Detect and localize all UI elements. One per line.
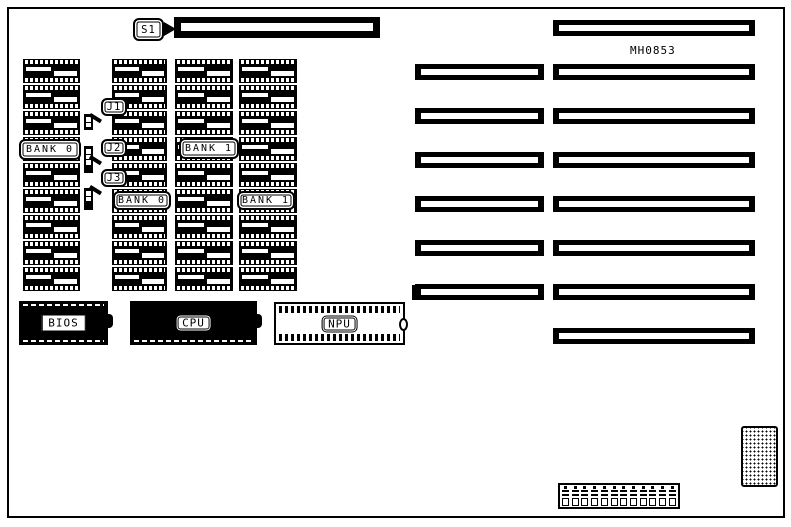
connector-terminal: [630, 486, 637, 492]
connector-dash: [572, 494, 579, 497]
memory-chip: [175, 59, 233, 83]
chip-pins: [175, 233, 233, 239]
connector-pin: [630, 498, 637, 506]
pin-row: [279, 306, 400, 313]
memory-chip: [175, 215, 233, 239]
memory-chip: [23, 267, 80, 291]
memory-chip: [239, 59, 297, 83]
memory-chip: [175, 241, 233, 265]
connector-dash-row: [562, 494, 676, 497]
chip-pins: [112, 259, 167, 265]
connector-terminal: [562, 486, 569, 492]
connector-pin: [601, 498, 608, 506]
memory-chip: [175, 267, 233, 291]
pin-row: [279, 334, 400, 341]
j2-label: J2: [101, 139, 127, 157]
chip-pins: [112, 77, 167, 83]
chip-pins: [175, 207, 233, 213]
memory-chip: [239, 85, 297, 109]
chip-body: [175, 247, 233, 259]
chip-pins: [23, 181, 80, 187]
chip-pins: [239, 285, 297, 291]
chip-pins: [175, 129, 233, 135]
memory-chip: [23, 241, 80, 265]
chip-body: [175, 221, 233, 233]
chip-pins: [175, 259, 233, 265]
chip-body: [23, 169, 80, 181]
memory-chip: [112, 59, 167, 83]
chip-notch-icon: [257, 314, 262, 328]
expansion-slot: [415, 284, 544, 300]
chip-notch-icon: [399, 318, 408, 331]
s1-label: S1: [133, 18, 164, 41]
jumper-cell: [86, 191, 91, 196]
connector-pin: [562, 498, 569, 506]
expansion-slot: [415, 152, 544, 168]
jumper-cell: [86, 160, 91, 165]
jumper-block-j3: [84, 188, 93, 210]
expansion-slot: [415, 240, 544, 256]
chip-body: [23, 247, 80, 259]
connector-dash: [601, 494, 608, 497]
memory-chip: [112, 267, 167, 291]
cpu-chip-label: CPU: [175, 315, 212, 332]
memory-chip: [175, 163, 233, 187]
expansion-slot: [415, 64, 544, 80]
memory-chip: [112, 241, 167, 265]
connector-dash: [630, 494, 637, 497]
chip-body: [239, 65, 297, 77]
chip-body: [239, 247, 297, 259]
expansion-slot: [553, 196, 755, 212]
chip-notch-icon: [108, 314, 113, 328]
memory-chip: [23, 111, 80, 135]
chip-pins: [175, 181, 233, 187]
cpu-chip: CPU: [130, 301, 257, 345]
memory-chip: [239, 111, 297, 135]
chip-body: [112, 221, 167, 233]
chip-pins: [23, 77, 80, 83]
expansion-slot: [553, 284, 755, 300]
chip-body: [175, 273, 233, 285]
connector-terminal: [581, 486, 588, 492]
chip-body: [239, 221, 297, 233]
connector-terminal: [649, 486, 656, 492]
chip-pins: [23, 129, 80, 135]
connector-pin: [620, 498, 627, 506]
memory-column: [239, 59, 297, 291]
chip-body: [239, 117, 297, 129]
connector-dash: [649, 494, 656, 497]
connector-dash: [611, 494, 618, 497]
jumper-cell: [86, 202, 91, 207]
memory-chip: [239, 215, 297, 239]
connector-terminal: [591, 486, 598, 492]
memory-chip: [175, 189, 233, 213]
bank1-label-left: BANK 1: [179, 138, 239, 159]
chip-body: [175, 169, 233, 181]
memory-chip: [175, 85, 233, 109]
npu-chip-label: NPU: [321, 315, 358, 332]
chip-pins: [175, 285, 233, 291]
expansion-slot: [553, 64, 755, 80]
chip-body: [175, 65, 233, 77]
jumper-cell: [86, 123, 91, 128]
memory-chip: [239, 267, 297, 291]
expansion-slot: [553, 152, 755, 168]
chip-body: [239, 273, 297, 285]
chip-body: [23, 273, 80, 285]
bios-chip-label: BIOS: [41, 315, 86, 332]
slot-column-right: [553, 20, 755, 344]
connector-dash: [659, 494, 666, 497]
connector-pin: [591, 498, 598, 506]
chip-pins: [175, 103, 233, 109]
chip-body: [23, 91, 80, 103]
connector-dash: [591, 494, 598, 497]
connector-terminal: [640, 486, 647, 492]
chip-body: [112, 247, 167, 259]
expansion-slot: [415, 196, 544, 212]
jumper-cell: [86, 197, 91, 202]
chip-body: [112, 65, 167, 77]
expansion-slot: [553, 108, 755, 124]
slot-column-left: [415, 64, 544, 300]
memory-chip: [175, 111, 233, 135]
connector-pin: [649, 498, 656, 506]
bank0-label-right: BANK 0: [113, 191, 171, 210]
pin-row: [134, 340, 253, 342]
connector-pin: [572, 498, 579, 506]
expansion-slot: [553, 20, 755, 36]
memory-column: [175, 59, 233, 291]
part-number: MH0853: [630, 44, 676, 57]
chip-pins: [23, 233, 80, 239]
memory-chip: [23, 189, 80, 213]
connector-dash: [669, 494, 676, 497]
chip-body: [239, 91, 297, 103]
connector-terminal: [601, 486, 608, 492]
memory-chip: [23, 163, 80, 187]
connector-terminal: [620, 486, 627, 492]
chip-body: [175, 117, 233, 129]
chip-pins: [23, 259, 80, 265]
j1-label: J1: [101, 98, 127, 116]
connector-dash: [640, 494, 647, 497]
chip-body: [239, 143, 297, 155]
expansion-slot: [553, 328, 755, 344]
pin-row: [23, 340, 104, 342]
s1-pointer-icon: [164, 22, 176, 36]
memory-chip: [239, 241, 297, 265]
connector-pin: [581, 498, 588, 506]
memory-chip: [239, 163, 297, 187]
chip-pins: [23, 207, 80, 213]
connector-terminal: [611, 486, 618, 492]
memory-chip: [239, 137, 297, 161]
memory-chip: [23, 215, 80, 239]
chip-pins: [239, 155, 297, 161]
memory-chip: [23, 85, 80, 109]
connector-terminal: [572, 486, 579, 492]
chip-pins: [239, 233, 297, 239]
chip-body: [175, 91, 233, 103]
chip-body: [23, 117, 80, 129]
chip-body: [239, 169, 297, 181]
chip-pins: [239, 77, 297, 83]
chip-body: [112, 273, 167, 285]
s1-switch-block: [174, 17, 380, 38]
chip-body: [23, 195, 80, 207]
connector-terminal: [659, 486, 666, 492]
connector-pin-row: [562, 498, 676, 506]
oscillator-component: [741, 426, 778, 487]
chip-body: [175, 195, 233, 207]
power-connector: [558, 483, 680, 509]
jumper-cell: [86, 166, 91, 171]
chip-pins: [175, 77, 233, 83]
bios-chip: BIOS: [19, 301, 108, 345]
connector-pin: [611, 498, 618, 506]
chip-pins: [112, 285, 167, 291]
connector-pin: [669, 498, 676, 506]
expansion-slot: [553, 240, 755, 256]
connector-terminal: [669, 486, 676, 492]
chip-pins: [23, 103, 80, 109]
memory-column: [23, 59, 80, 291]
memory-chip: [112, 215, 167, 239]
chip-pins: [112, 233, 167, 239]
connector-dash: [562, 494, 569, 497]
connector-terminal-row: [562, 486, 676, 492]
chip-pins: [239, 181, 297, 187]
chip-body: [23, 65, 80, 77]
chip-body: [23, 221, 80, 233]
expansion-slot: [415, 108, 544, 124]
jumper-cell: [86, 149, 91, 154]
pin-row: [23, 304, 104, 306]
memory-chip: [23, 59, 80, 83]
chip-pins: [239, 103, 297, 109]
j3-label: J3: [101, 169, 127, 187]
chip-pins: [239, 129, 297, 135]
connector-pin: [659, 498, 666, 506]
bank1-label-right: BANK 1: [237, 191, 295, 210]
npu-socket: NPU: [274, 302, 405, 345]
connector-dash: [620, 494, 627, 497]
chip-pins: [239, 259, 297, 265]
chip-pins: [112, 129, 167, 135]
connector-dash: [581, 494, 588, 497]
connector-pin: [640, 498, 647, 506]
board-outline: S1 BANK 0 BANK 1 BANK 0 BANK 1 J1 J2 J3 …: [7, 7, 785, 518]
chip-pins: [23, 285, 80, 291]
bank0-label-left: BANK 0: [19, 139, 81, 160]
chip-body: [112, 117, 167, 129]
